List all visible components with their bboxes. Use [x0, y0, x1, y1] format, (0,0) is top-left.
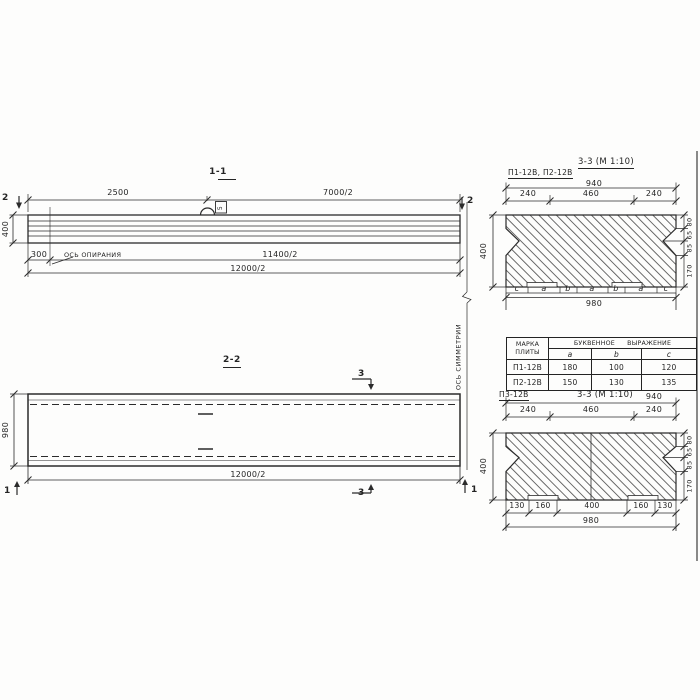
- section-3-3-top-title: 3-3 (М 1:10): [578, 158, 634, 169]
- table-row2-a: 150: [549, 375, 592, 390]
- dim-label-130-left: 130: [509, 502, 524, 510]
- dim-label-400-height: 400: [2, 221, 10, 237]
- letter-cell-a3: a: [638, 285, 643, 293]
- dim-label-12000-2-top: 12000/2: [230, 265, 265, 273]
- letter-cell-b2: b: [613, 285, 618, 293]
- letter-cell-a2: a: [589, 285, 594, 293]
- dim-label-400-left-top: 400: [480, 243, 488, 259]
- table-row1-b: 100: [592, 360, 642, 375]
- dim-label-85-top: 85: [687, 244, 694, 253]
- section-1-1-title: 1-1: [218, 168, 236, 180]
- dim-label-80-bottom: 80: [687, 436, 694, 445]
- dim-label-240-right-bottom: 240: [646, 406, 662, 414]
- dim-label-2500: 2500: [107, 189, 129, 197]
- lifting-loop-tag: 5: [218, 205, 224, 209]
- cut-marker-1-right: 1: [471, 486, 478, 495]
- table-row2-b: 130: [592, 375, 642, 390]
- dim-label-980-top: 980: [586, 300, 602, 308]
- table-col-c: c: [642, 349, 696, 360]
- cut-marker-3-bottom: 3: [358, 489, 365, 498]
- dim-label-240-left-bottom: 240: [520, 406, 536, 414]
- symmetry-axis-label: ОСЬ СИММЕТРИИ: [456, 324, 463, 390]
- table-row1-mark: П1-12В: [507, 360, 549, 375]
- dim-label-460-top: 460: [583, 190, 599, 198]
- dim-label-170-bottom: 170: [687, 479, 694, 492]
- cut-marker-2-right: 2: [467, 197, 474, 206]
- dim-label-160-left: 160: [535, 502, 550, 510]
- table-col-a: a: [549, 349, 592, 360]
- bearing-axis-label: ОСЬ ОПИРАНИЯ: [64, 252, 121, 259]
- table-header-mark: МАРКА ПЛИТЫ: [507, 338, 549, 360]
- dim-label-460-bottom: 460: [583, 406, 599, 414]
- letter-cell-c2: c: [664, 285, 669, 293]
- dim-label-940-bottom: 940: [646, 393, 662, 401]
- table-row2-mark: П2-12В: [507, 375, 549, 390]
- slab-label-p3: П3-12В: [499, 391, 529, 401]
- cut-marker-2-left: 2: [2, 194, 9, 203]
- engineering-drawing-sheet: 1-1 2500 7000/2 2 2 400 300 ОСЬ ОПИРАНИЯ…: [0, 0, 700, 700]
- dim-label-980-bottom: 980: [583, 517, 599, 525]
- letter-cell-c1: c: [515, 285, 520, 293]
- letter-cell-a1: a: [541, 285, 546, 293]
- dim-label-940-top: 940: [586, 180, 602, 188]
- dim-label-12000-2-bottom: 12000/2: [230, 471, 265, 479]
- cut-marker-1-left: 1: [4, 487, 11, 496]
- symmetry-axis-line: [463, 202, 472, 470]
- dim-label-240-left-top: 240: [520, 190, 536, 198]
- table-row1-a: 180: [549, 360, 592, 375]
- section-2-2-title: 2-2: [223, 356, 241, 368]
- cut-marker-3-top: 3: [358, 370, 365, 379]
- slab-letter-dimension-table: МАРКА ПЛИТЫ БУКВЕННОЕ ВЫРАЖЕНИЕ a b c П1…: [506, 337, 697, 391]
- dim-label-85-bottom: 85: [687, 460, 694, 469]
- dim-label-400-left-bottom: 400: [480, 458, 488, 474]
- table-row1-c: 120: [642, 360, 696, 375]
- dim-label-80-top: 80: [687, 218, 694, 227]
- dim-label-240-right-top: 240: [646, 190, 662, 198]
- dim-label-65-top: 65: [687, 231, 694, 240]
- dim-label-400-center: 400: [584, 502, 599, 510]
- table-row2-c: 135: [642, 375, 696, 390]
- dim-label-160-right: 160: [633, 502, 648, 510]
- dim-label-11400-2: 11400/2: [262, 251, 297, 259]
- dim-label-170-top: 170: [687, 264, 694, 277]
- dim-label-65-bottom: 65: [687, 448, 694, 457]
- letter-cell-b1: b: [565, 285, 570, 293]
- dim-label-300: 300: [31, 251, 47, 259]
- slab-label-p1-p2: П1-12В, П2-12В: [508, 169, 573, 179]
- dim-label-130-right: 130: [657, 502, 672, 510]
- dim-label-7000-2: 7000/2: [323, 189, 353, 197]
- section-3-3-bottom-linework: [489, 398, 688, 532]
- dim-label-980-plan: 980: [2, 422, 10, 438]
- section-3-3-bottom-title: 3-3 (М 1:10): [577, 391, 633, 400]
- table-col-b: b: [592, 349, 642, 360]
- table-header-expression: БУКВЕННОЕ ВЫРАЖЕНИЕ: [549, 338, 696, 349]
